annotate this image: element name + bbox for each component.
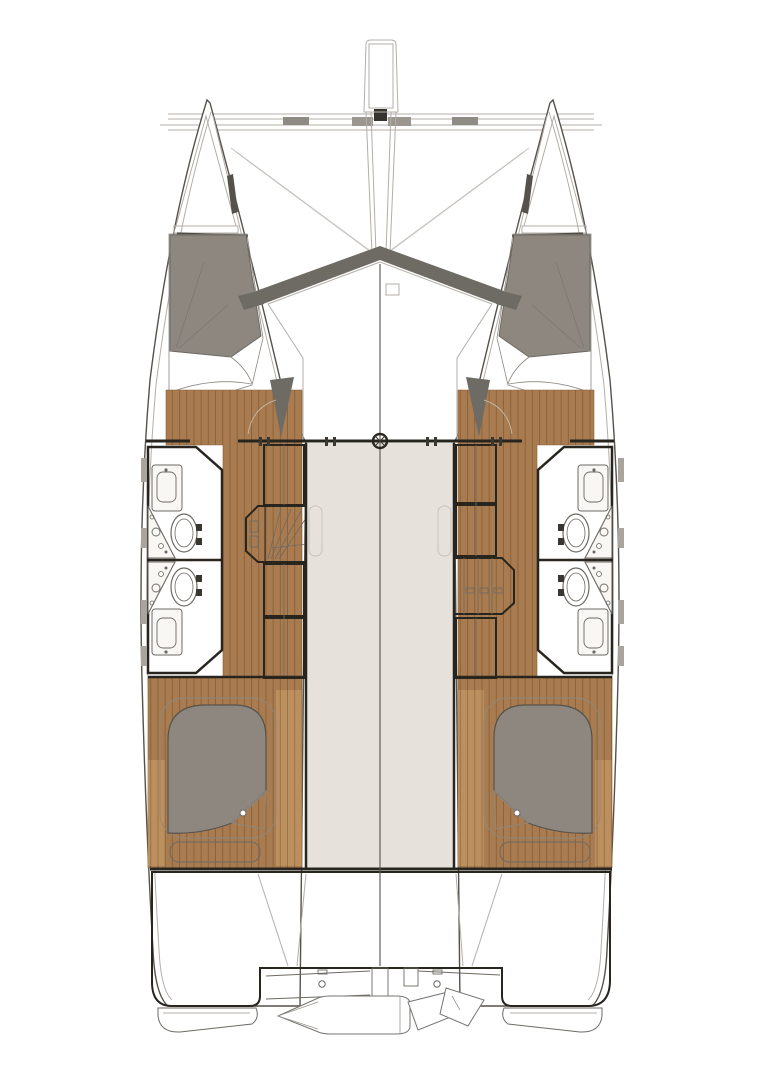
crossbeam-fitting [388, 117, 411, 126]
catamaran-floor-plan [0, 0, 765, 1080]
crossbeam-fitting [352, 117, 373, 126]
port-aft-side-shelf [148, 760, 165, 866]
starboard-forward-vanity [578, 465, 608, 511]
port-aft-side-shelf [276, 690, 302, 866]
starboard-aft-side-shelf [595, 760, 612, 866]
starboard-aft-side-shelf [458, 690, 484, 866]
port-forward-vanity [152, 465, 182, 511]
crossbeam-fitting [452, 117, 478, 125]
anchor-fitting [374, 109, 387, 121]
crossbeam-fitting [283, 117, 309, 125]
port-aft-vanity [152, 609, 182, 655]
port-aft-sheet-button [240, 810, 246, 816]
floor-plan-drawing [0, 0, 765, 1080]
starboard-aft-sheet-button [514, 810, 520, 816]
starboard-aft-vanity [578, 609, 608, 655]
